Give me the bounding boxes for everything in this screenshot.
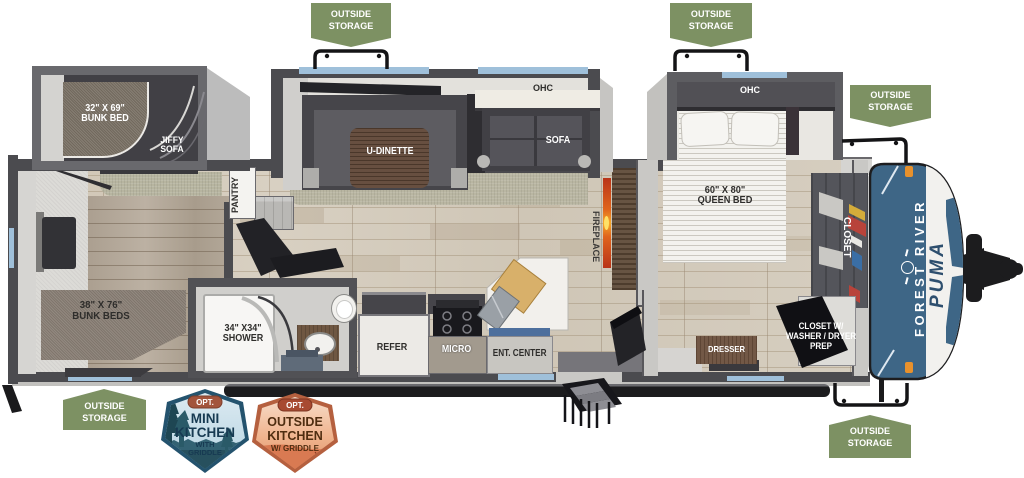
svg-text:KITCHEN: KITCHEN [175, 425, 235, 440]
svg-text:KITCHEN: KITCHEN [267, 429, 323, 443]
svg-text:OUTSIDE: OUTSIDE [267, 415, 323, 429]
svg-text:W/ GRIDDLE: W/ GRIDDLE [271, 444, 320, 453]
svg-text:GRIDDLE: GRIDDLE [188, 448, 222, 457]
svg-text:MINI: MINI [191, 411, 220, 426]
svg-text:OPT.: OPT. [196, 398, 214, 407]
svg-text:OPT.: OPT. [286, 401, 304, 410]
